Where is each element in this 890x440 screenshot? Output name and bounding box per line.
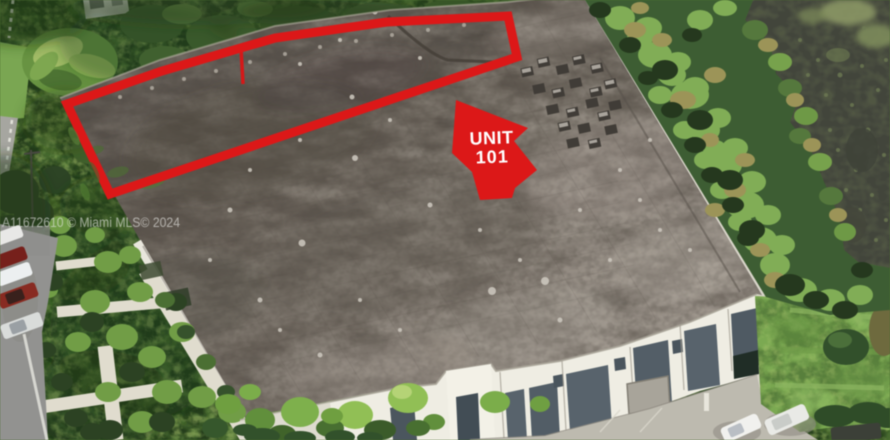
svg-text:101: 101 bbox=[475, 146, 509, 167]
svg-text:A11672610 © Miami MLS© 2024: A11672610 © Miami MLS© 2024 bbox=[2, 215, 180, 230]
